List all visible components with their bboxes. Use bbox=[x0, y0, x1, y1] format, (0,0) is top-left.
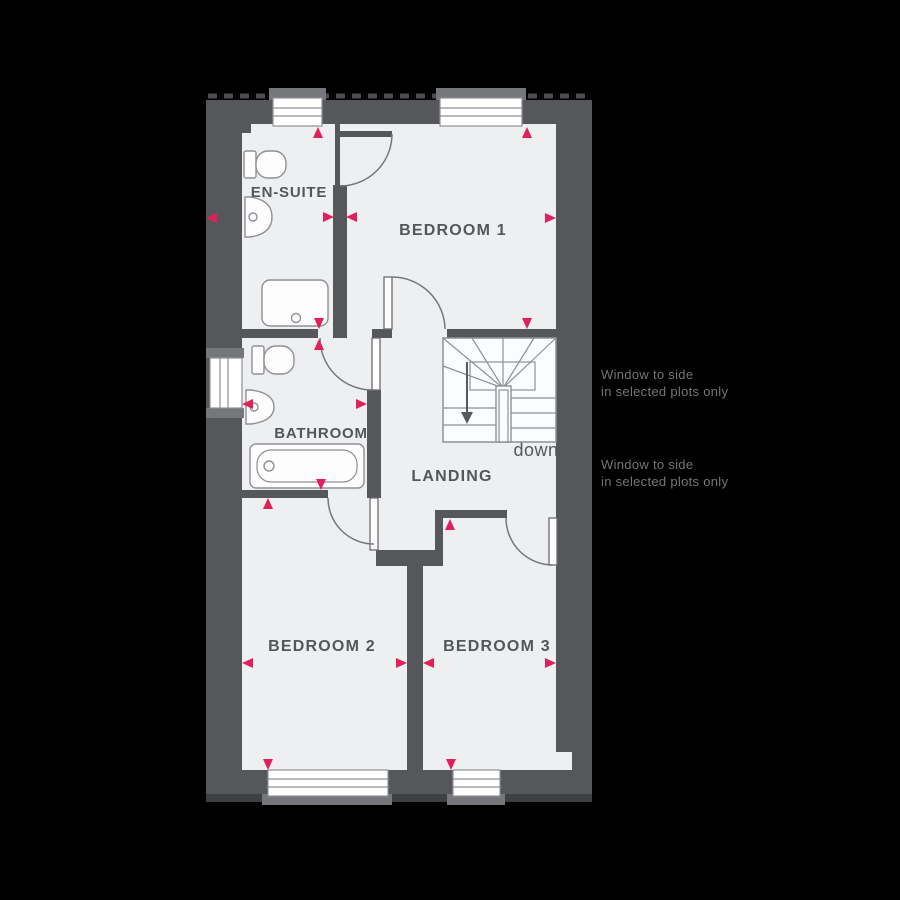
floor-plan-drawing: EN-SUITE BEDROOM 1 BATHROOM LANDING down… bbox=[0, 0, 900, 900]
annotation-note-2: Window to side in selected plots only bbox=[601, 457, 728, 489]
door-leaf bbox=[384, 277, 392, 329]
room-label-ensuite: EN-SUITE bbox=[251, 184, 327, 201]
door-leaf bbox=[372, 338, 380, 390]
door-leaf bbox=[340, 131, 392, 137]
annotation-note-1: Window to side in selected plots only bbox=[601, 367, 728, 399]
window bbox=[206, 348, 244, 418]
stairs-down-label: down bbox=[513, 440, 558, 460]
room-label-bedroom2: BEDROOM 2 bbox=[268, 638, 376, 655]
annotation-line: in selected plots only bbox=[601, 474, 728, 489]
annotation-line: in selected plots only bbox=[601, 384, 728, 399]
room-label-bedroom3: BEDROOM 3 bbox=[443, 638, 551, 655]
annotation-line: Window to side bbox=[601, 367, 693, 382]
door-leaf bbox=[549, 518, 557, 565]
window bbox=[453, 770, 500, 796]
door-leaf bbox=[370, 498, 378, 550]
bathtub-icon bbox=[250, 444, 364, 488]
room-label-landing: LANDING bbox=[411, 468, 492, 485]
room-label-bathroom: BATHROOM bbox=[274, 425, 368, 442]
toilet-icon bbox=[244, 151, 286, 178]
annotation-line: Window to side bbox=[601, 457, 693, 472]
staircase bbox=[443, 338, 556, 442]
window bbox=[440, 98, 522, 126]
window bbox=[273, 98, 322, 126]
toilet-icon bbox=[252, 346, 294, 374]
room-label-bedroom1: BEDROOM 1 bbox=[399, 222, 507, 239]
window bbox=[268, 770, 388, 796]
floor-plan-page: EN-SUITE BEDROOM 1 BATHROOM LANDING down… bbox=[0, 0, 900, 900]
